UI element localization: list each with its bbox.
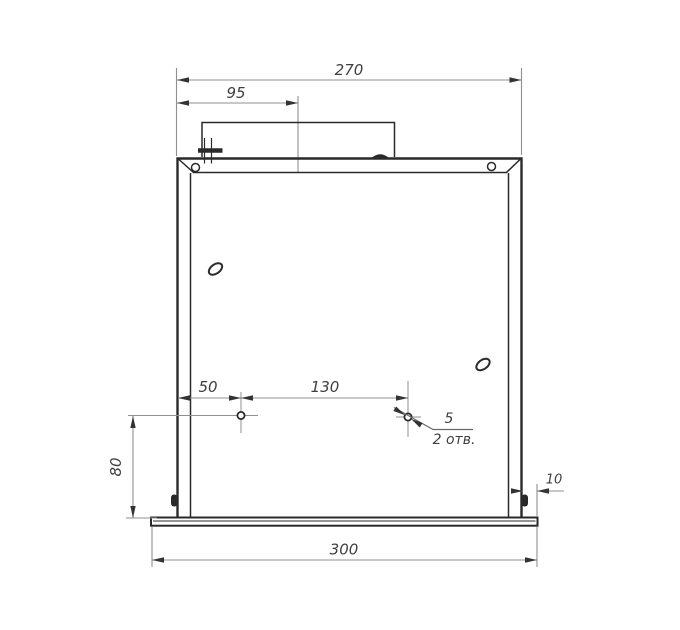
drawing-canvas: 270 95: [0, 0, 680, 630]
arrowhead-icon: [177, 77, 189, 82]
side-tab-right: [522, 495, 529, 507]
panel-outer-outline: [178, 159, 522, 518]
dim-95-label: 95: [226, 84, 245, 102]
dimension-overall-width: 270: [177, 61, 523, 156]
arrowhead-icon: [510, 77, 522, 82]
frame-hole-left: [192, 164, 200, 172]
dim-50-label: 50: [198, 378, 217, 396]
hole-diameter-label: 5: [445, 411, 454, 427]
corner-chamfer-right: [507, 160, 521, 173]
holes-count-label: 2 отв.: [433, 432, 476, 448]
arrowhead-icon: [130, 416, 135, 428]
mounting-hole-left: [237, 412, 244, 419]
panel-body: [171, 159, 528, 518]
dimension-hole-height: 80: [107, 416, 157, 518]
slot-upper-left: [207, 261, 225, 277]
dim-270-label: 270: [335, 61, 364, 79]
slot-lower-right: [474, 356, 492, 372]
dim-130-label: 130: [311, 378, 340, 396]
flange-outline: [151, 518, 538, 526]
arrowhead-icon: [152, 557, 164, 562]
arrowhead-icon: [396, 395, 408, 400]
hole-diameter-callout: 5 2 отв.: [393, 406, 475, 448]
arrowhead-icon: [537, 488, 549, 493]
arrowhead-icon: [130, 506, 135, 518]
dim-300-label: 300: [330, 541, 359, 559]
arrowhead-icon: [241, 395, 253, 400]
arrowhead-icon: [525, 557, 537, 562]
dimension-base-width: 300: [152, 527, 537, 567]
dim-10-label: 10: [546, 473, 563, 488]
arrowhead-icon: [229, 395, 241, 400]
dimension-hole-positions: 50 130: [178, 378, 408, 401]
side-tab-left: [171, 495, 178, 507]
dim-80-label: 80: [107, 457, 125, 476]
arrowhead-icon: [178, 395, 190, 400]
arrowhead-icon: [177, 100, 189, 105]
arrowhead-icon: [286, 100, 298, 105]
dimension-flange-lip: 10: [511, 473, 564, 518]
frame-hole-right: [488, 163, 496, 171]
mounting-holes: [128, 381, 421, 437]
base-flange: [151, 518, 538, 526]
technical-drawing: 270 95: [0, 0, 680, 630]
